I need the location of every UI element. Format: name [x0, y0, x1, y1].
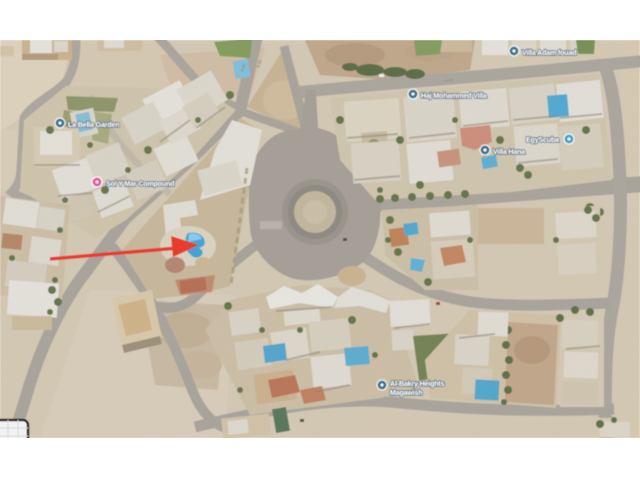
svg-text:Magawish: Magawish: [390, 390, 422, 397]
svg-text:La Bella Garden: La Bella Garden: [68, 122, 119, 129]
svg-text:Haj Mohammed Villa: Haj Mohammed Villa: [421, 93, 487, 100]
svg-text:4-10: 4-10: [445, 77, 454, 83]
svg-text:Villa Adam fouad: Villa Adam fouad: [522, 50, 576, 57]
svg-text:Al-Bakry Heights: Al-Bakry Heights: [390, 381, 445, 388]
svg-text:Villa Hana: Villa Hana: [493, 149, 525, 156]
svg-text:Sol Y Mar Compound: Sol Y Mar Compound: [106, 181, 174, 188]
svg-text:EgyScuba: EgyScuba: [526, 137, 559, 144]
